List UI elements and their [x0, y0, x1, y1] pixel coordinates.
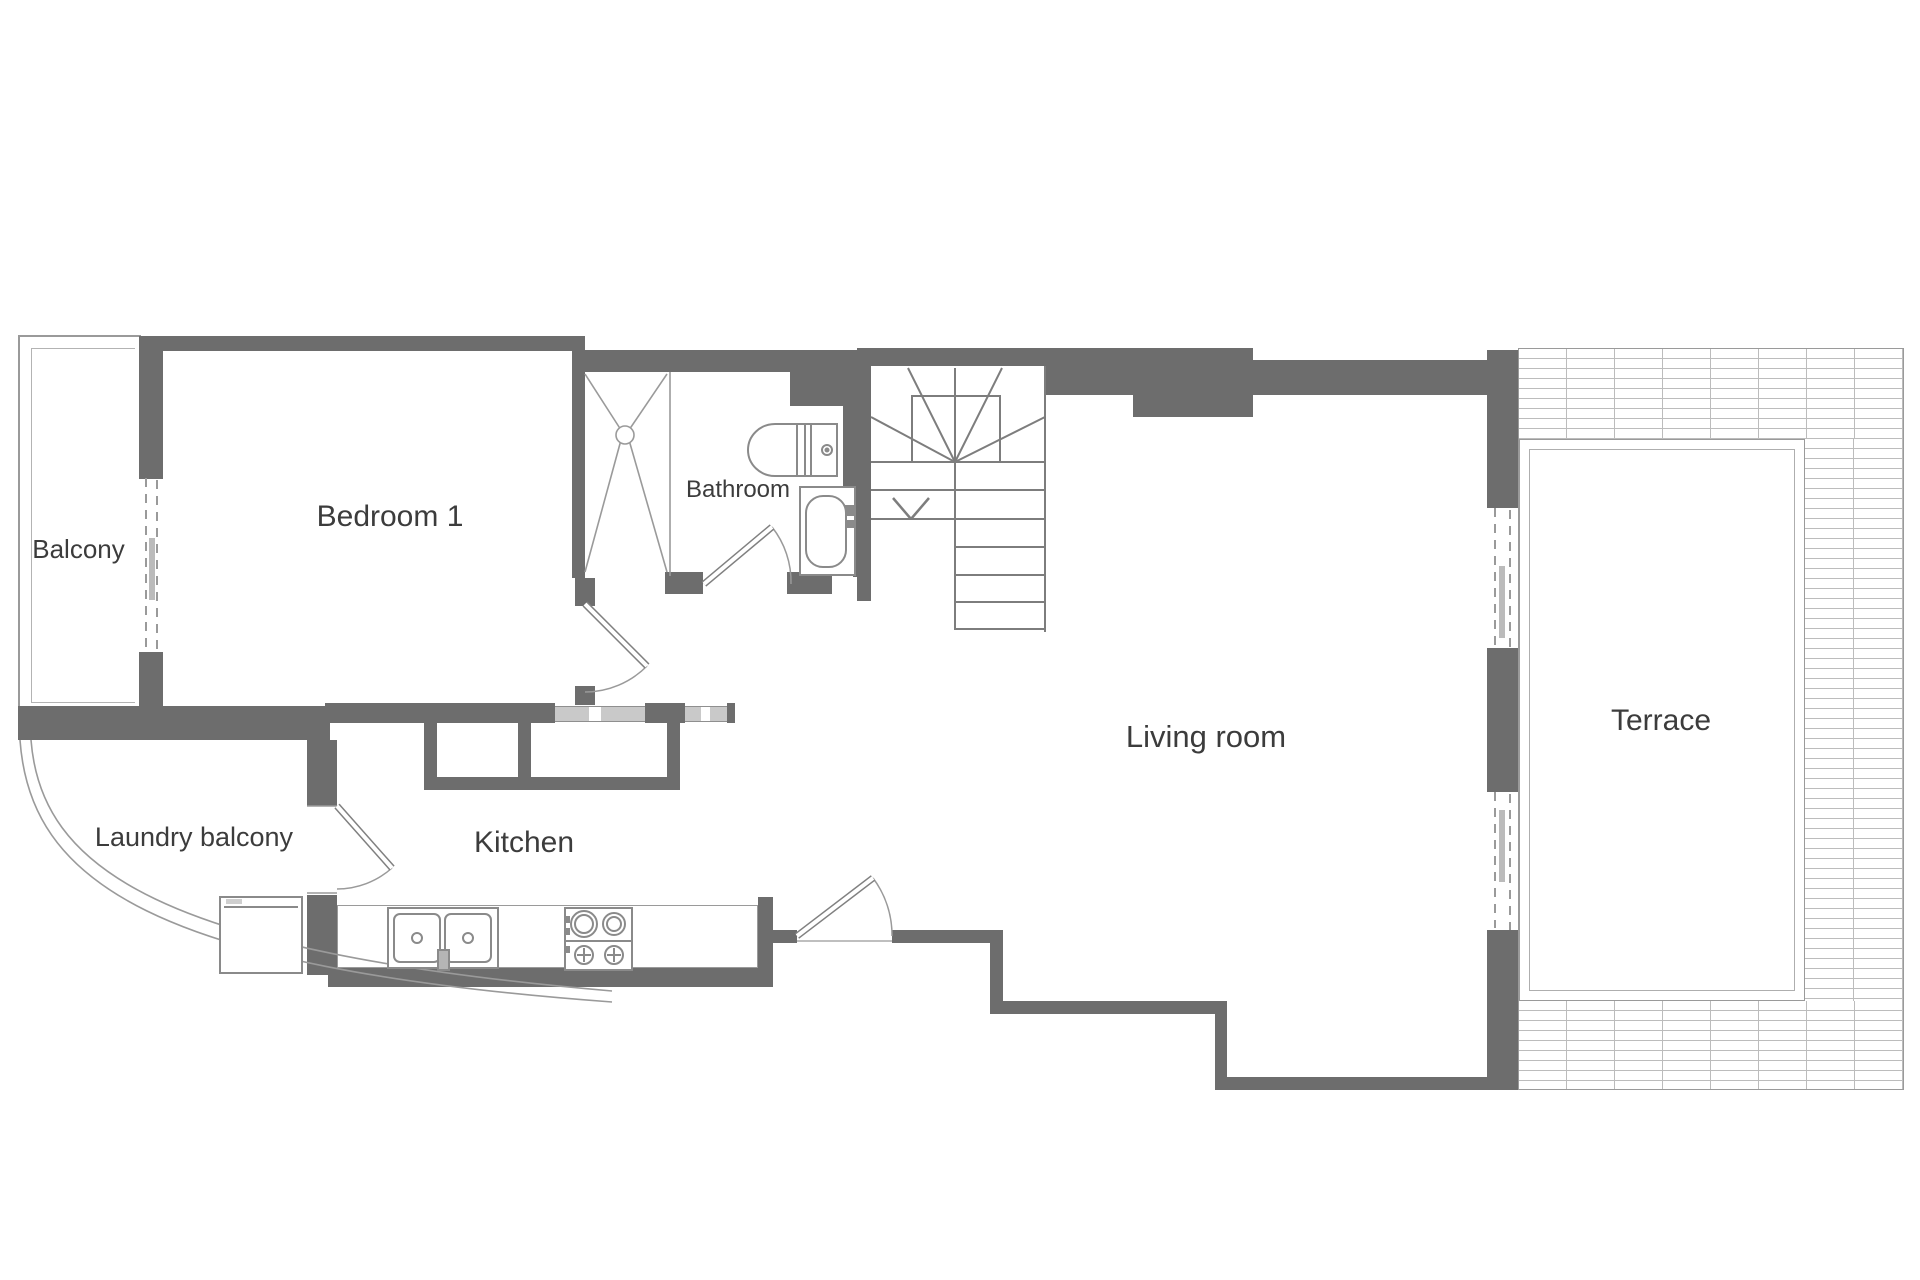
- window: [555, 706, 645, 722]
- wall-segment: [1487, 930, 1518, 1090]
- wall-segment: [575, 686, 595, 705]
- wall-segment: [575, 350, 867, 372]
- wall-segment: [1215, 1001, 1227, 1090]
- staircase-icon: [871, 366, 1045, 632]
- wall-segment: [990, 930, 1003, 1014]
- wall-segment: [865, 348, 1046, 366]
- wall-segment: [1487, 350, 1518, 508]
- terrace-tiles-right: [1805, 439, 1903, 1001]
- wall-segment: [1003, 1001, 1227, 1014]
- closet-wall: [424, 722, 437, 782]
- wall-segment: [790, 372, 843, 406]
- terrace-slider-upper[interactable]: [1495, 508, 1510, 648]
- wall-segment: [787, 572, 832, 594]
- terrace-slider-lower[interactable]: [1495, 792, 1510, 930]
- room-label-bathroom: Bathroom: [663, 476, 813, 504]
- bathroom-door[interactable]: [704, 527, 791, 584]
- wall-segment: [665, 572, 703, 594]
- closet-wall: [667, 722, 680, 782]
- wall-segment: [307, 895, 337, 975]
- washing-machine-icon: [220, 897, 302, 973]
- closet-wall: [424, 777, 680, 790]
- wall-segment: [857, 348, 871, 601]
- wall-segment: [307, 740, 337, 806]
- terrace-tiles-bottom: [1519, 1001, 1903, 1089]
- wall-segment: [328, 968, 773, 987]
- wall-segment: [773, 930, 797, 943]
- wall-segment: [139, 336, 585, 351]
- wall-segment: [18, 706, 330, 740]
- entrance-door[interactable]: [797, 878, 892, 941]
- balcony-railing-inner: [31, 348, 135, 703]
- wall-segment: [572, 338, 585, 578]
- wall-segment: [645, 703, 685, 723]
- bedroom-door[interactable]: [585, 604, 647, 692]
- wall-segment: [1227, 1077, 1518, 1090]
- closet-wall: [518, 722, 531, 782]
- window: [685, 706, 727, 722]
- wall-segment: [1253, 360, 1487, 395]
- balcony-slider[interactable]: [146, 478, 157, 655]
- toilet-icon: [748, 424, 837, 476]
- balcony-railing: [18, 335, 141, 722]
- wall-segment: [892, 930, 1003, 943]
- room-label-kitchen: Kitchen: [424, 826, 624, 860]
- wall-segment: [325, 703, 555, 723]
- wall-segment: [575, 578, 595, 606]
- room-label-balcony: Balcony: [18, 534, 139, 565]
- floor-plan-canvas: Balcony Bedroom 1 Bathroom Kitchen Laund…: [0, 0, 1920, 1280]
- room-label-terrace: Terrace: [1511, 704, 1811, 738]
- wall-segment: [1133, 395, 1253, 417]
- stairs-down-arrow-icon: [893, 498, 929, 519]
- room-label-living-room: Living room: [1056, 719, 1356, 755]
- room-label-bedroom1: Bedroom 1: [240, 500, 540, 534]
- wall-segment: [727, 703, 735, 723]
- terrace-tiles-top: [1519, 349, 1903, 439]
- wall-segment: [758, 897, 773, 987]
- kitchen-counter: [337, 905, 758, 968]
- wall-segment: [139, 652, 163, 712]
- wall-segment: [139, 336, 163, 479]
- shower-icon: [585, 372, 670, 576]
- room-label-laundry-balcony: Laundry balcony: [44, 822, 344, 853]
- wall-segment: [1046, 348, 1253, 395]
